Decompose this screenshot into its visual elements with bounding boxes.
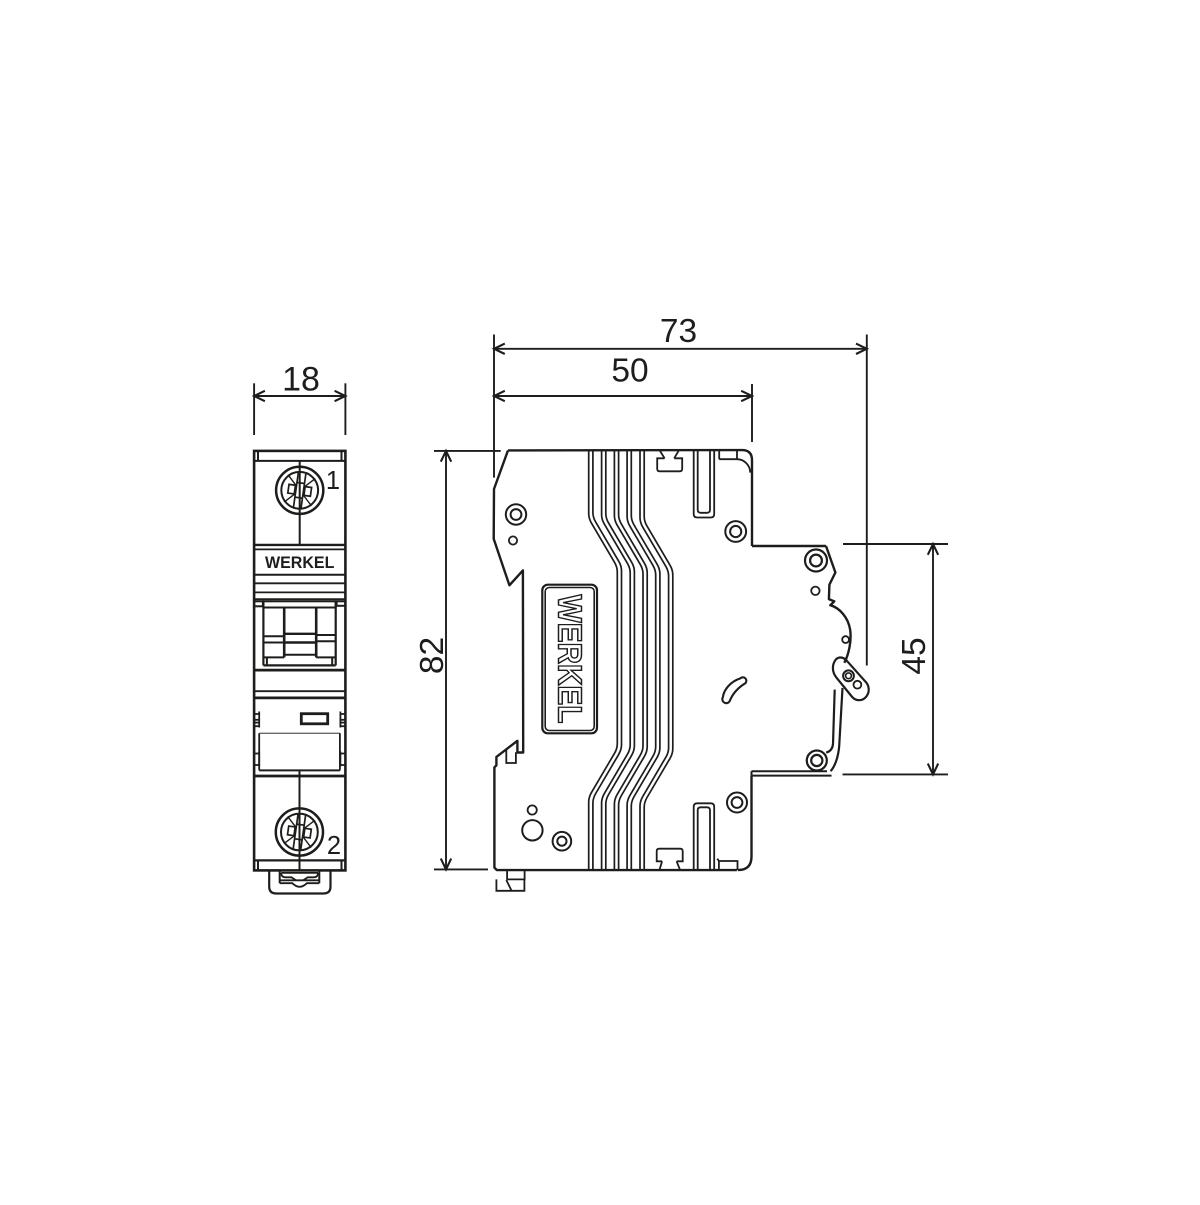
svg-text:18: 18 xyxy=(282,361,320,399)
svg-text:45: 45 xyxy=(896,637,933,674)
svg-text:WERKEL: WERKEL xyxy=(552,595,589,724)
svg-text:82: 82 xyxy=(414,637,451,674)
svg-text:73: 73 xyxy=(660,313,697,350)
svg-text:WERKEL: WERKEL xyxy=(265,553,334,572)
svg-text:50: 50 xyxy=(611,352,648,389)
svg-text:1: 1 xyxy=(326,467,340,495)
svg-text:2: 2 xyxy=(327,832,341,860)
